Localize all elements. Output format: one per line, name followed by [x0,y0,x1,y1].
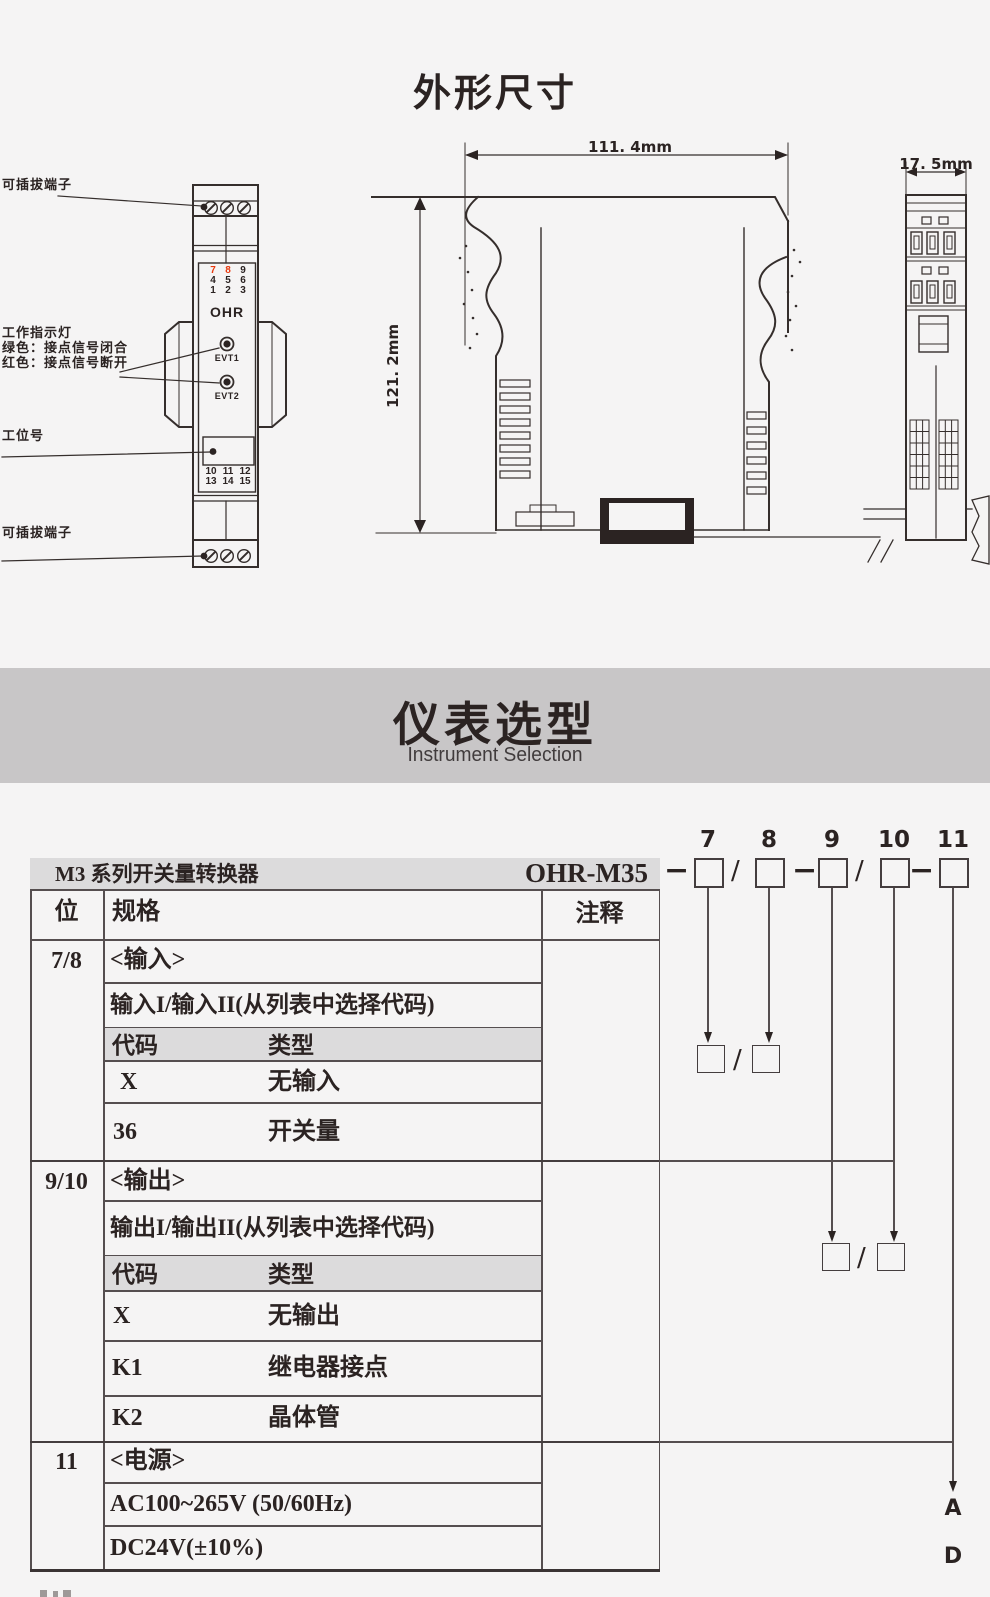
code-box-11 [939,858,969,888]
clipped-footer-fragment [63,1590,71,1597]
row-border [103,1395,541,1397]
input-code-box-1 [697,1045,725,1073]
connector-line-10 [893,888,895,1231]
arrowhead-icon [890,1231,898,1242]
clipped-footer-fragment [53,1591,58,1597]
section-border [30,1160,660,1163]
row-border [103,1482,541,1484]
terminal-digit: 15 [237,477,253,487]
slash-separator: / [731,856,740,886]
power-code-ac: A [938,1496,968,1521]
code-cell: X [120,1068,137,1096]
indicator-label-line3: 红色：接点信号断开 [2,355,128,370]
page-title: 外形尺寸 [0,62,990,117]
position-cell: 7/8 [30,947,103,975]
row-border [103,1525,541,1527]
side-view-drawing [372,143,880,544]
type-header: 类型 [268,1032,314,1059]
row-border [103,1102,541,1104]
code-header-band [105,1256,541,1290]
table-border [30,939,660,941]
position-label-8: 8 [749,827,789,853]
slash-separator: / [733,1045,742,1075]
row-border [103,982,541,984]
height-dimension: 121. 2mm [384,306,400,426]
bottom-terminal-label: 可插拔端子 [2,525,72,540]
width-dimension: 111. 4mm [560,138,700,156]
table-border [541,889,543,1571]
terminal-digit: 14 [220,477,236,487]
section-title: <电源> [110,1447,185,1475]
table-border [30,889,660,891]
position-cell: 9/10 [30,1168,103,1196]
code-cell: K2 [112,1404,143,1432]
indicator-label-line2: 绿色：接点信号闭合 [2,340,128,355]
section-title: <输入> [110,946,185,974]
terminal-digit: 1 [205,286,221,296]
code-cell: K1 [112,1354,143,1382]
code-header: 代码 [112,1032,158,1059]
code-box-9 [818,858,848,888]
terminal-digit: 13 [203,477,219,487]
dash-separator: − [664,856,684,886]
section-subtitle: 输出I/输出II(从列表中选择代码) [110,1214,435,1241]
table-bottom-border [30,1569,660,1572]
depth-dimension: 17. 5mm [876,155,990,173]
col-header-position: 位 [30,898,103,926]
brand-logo: OHR [202,304,252,320]
type-cell: 无输入 [268,1068,340,1096]
table-border [103,889,105,1571]
output-code-box-2 [877,1243,905,1271]
top-terminal-label: 可插拔端子 [2,177,72,192]
model-code: OHR-M35 [440,857,648,889]
section-border-extension [659,1441,953,1443]
terminal-digit: 2 [220,286,236,296]
arrowhead-icon [765,1032,773,1043]
indicator-label-line1: 工作指示灯 [2,325,72,340]
slash-separator: / [857,1243,866,1273]
end-view-drawing [864,162,989,564]
table-border [659,889,661,1571]
code-cell: X [113,1302,130,1330]
row-border [103,1290,541,1292]
slash-separator: / [855,856,864,886]
front-view-drawing [2,185,286,567]
dash-separator: − [909,856,929,886]
code-box-7 [694,858,724,888]
connector-line-8 [768,888,770,1032]
row-border [103,1200,541,1202]
type-cell: 开关量 [268,1118,340,1146]
connector-line-9 [831,888,833,1231]
power-option-dc: DC24V(±10%) [110,1534,263,1562]
section-title: <输出> [110,1167,185,1195]
code-box-8 [755,858,785,888]
section-border-extension [659,1160,894,1162]
code-header-band [105,1028,541,1060]
code-box-10 [880,858,910,888]
led2-label: EVT2 [207,391,247,401]
arrowhead-icon [828,1231,836,1242]
connector-line-11 [952,888,954,1481]
selection-subtitle: Instrument Selection [20,744,970,767]
datasheet-page: 外形尺寸 可插拔端子 工作指示灯 绿色：接点信号闭合 红色：接点信号断开 工位号… [0,0,990,1597]
position-label-7: 7 [688,827,728,853]
output-code-box-1 [822,1243,850,1271]
series-title: M3 系列开关量转换器 [55,861,259,887]
power-option-ac: AC100~265V (50/60Hz) [110,1490,352,1518]
code-cell: 36 [113,1118,137,1146]
section-border [30,1441,660,1444]
position-label-11: 11 [933,827,973,853]
position-label-9: 9 [812,827,852,853]
power-code-dc: D [938,1544,968,1569]
position-label-10: 10 [874,827,914,853]
type-cell: 无输出 [268,1302,340,1330]
terminal-digit: 3 [235,286,251,296]
led1-label: EVT1 [207,353,247,363]
type-cell: 晶体管 [268,1404,340,1432]
row-border [103,1060,541,1062]
arrowhead-icon [704,1032,712,1043]
arrowhead-icon [949,1481,957,1492]
col-header-spec: 规格 [112,898,160,926]
type-cell: 继电器接点 [268,1354,388,1382]
row-border [103,1340,541,1342]
station-label: 工位号 [2,428,44,443]
col-header-note: 注释 [541,900,658,928]
type-header: 类型 [268,1261,314,1288]
code-header: 代码 [112,1261,158,1288]
connector-line-7 [707,888,709,1032]
section-subtitle: 输入I/输入II(从列表中选择代码) [110,991,435,1018]
dash-separator: − [792,856,812,886]
clipped-footer-fragment [40,1590,47,1597]
input-code-box-2 [752,1045,780,1073]
position-cell: 11 [30,1448,103,1476]
